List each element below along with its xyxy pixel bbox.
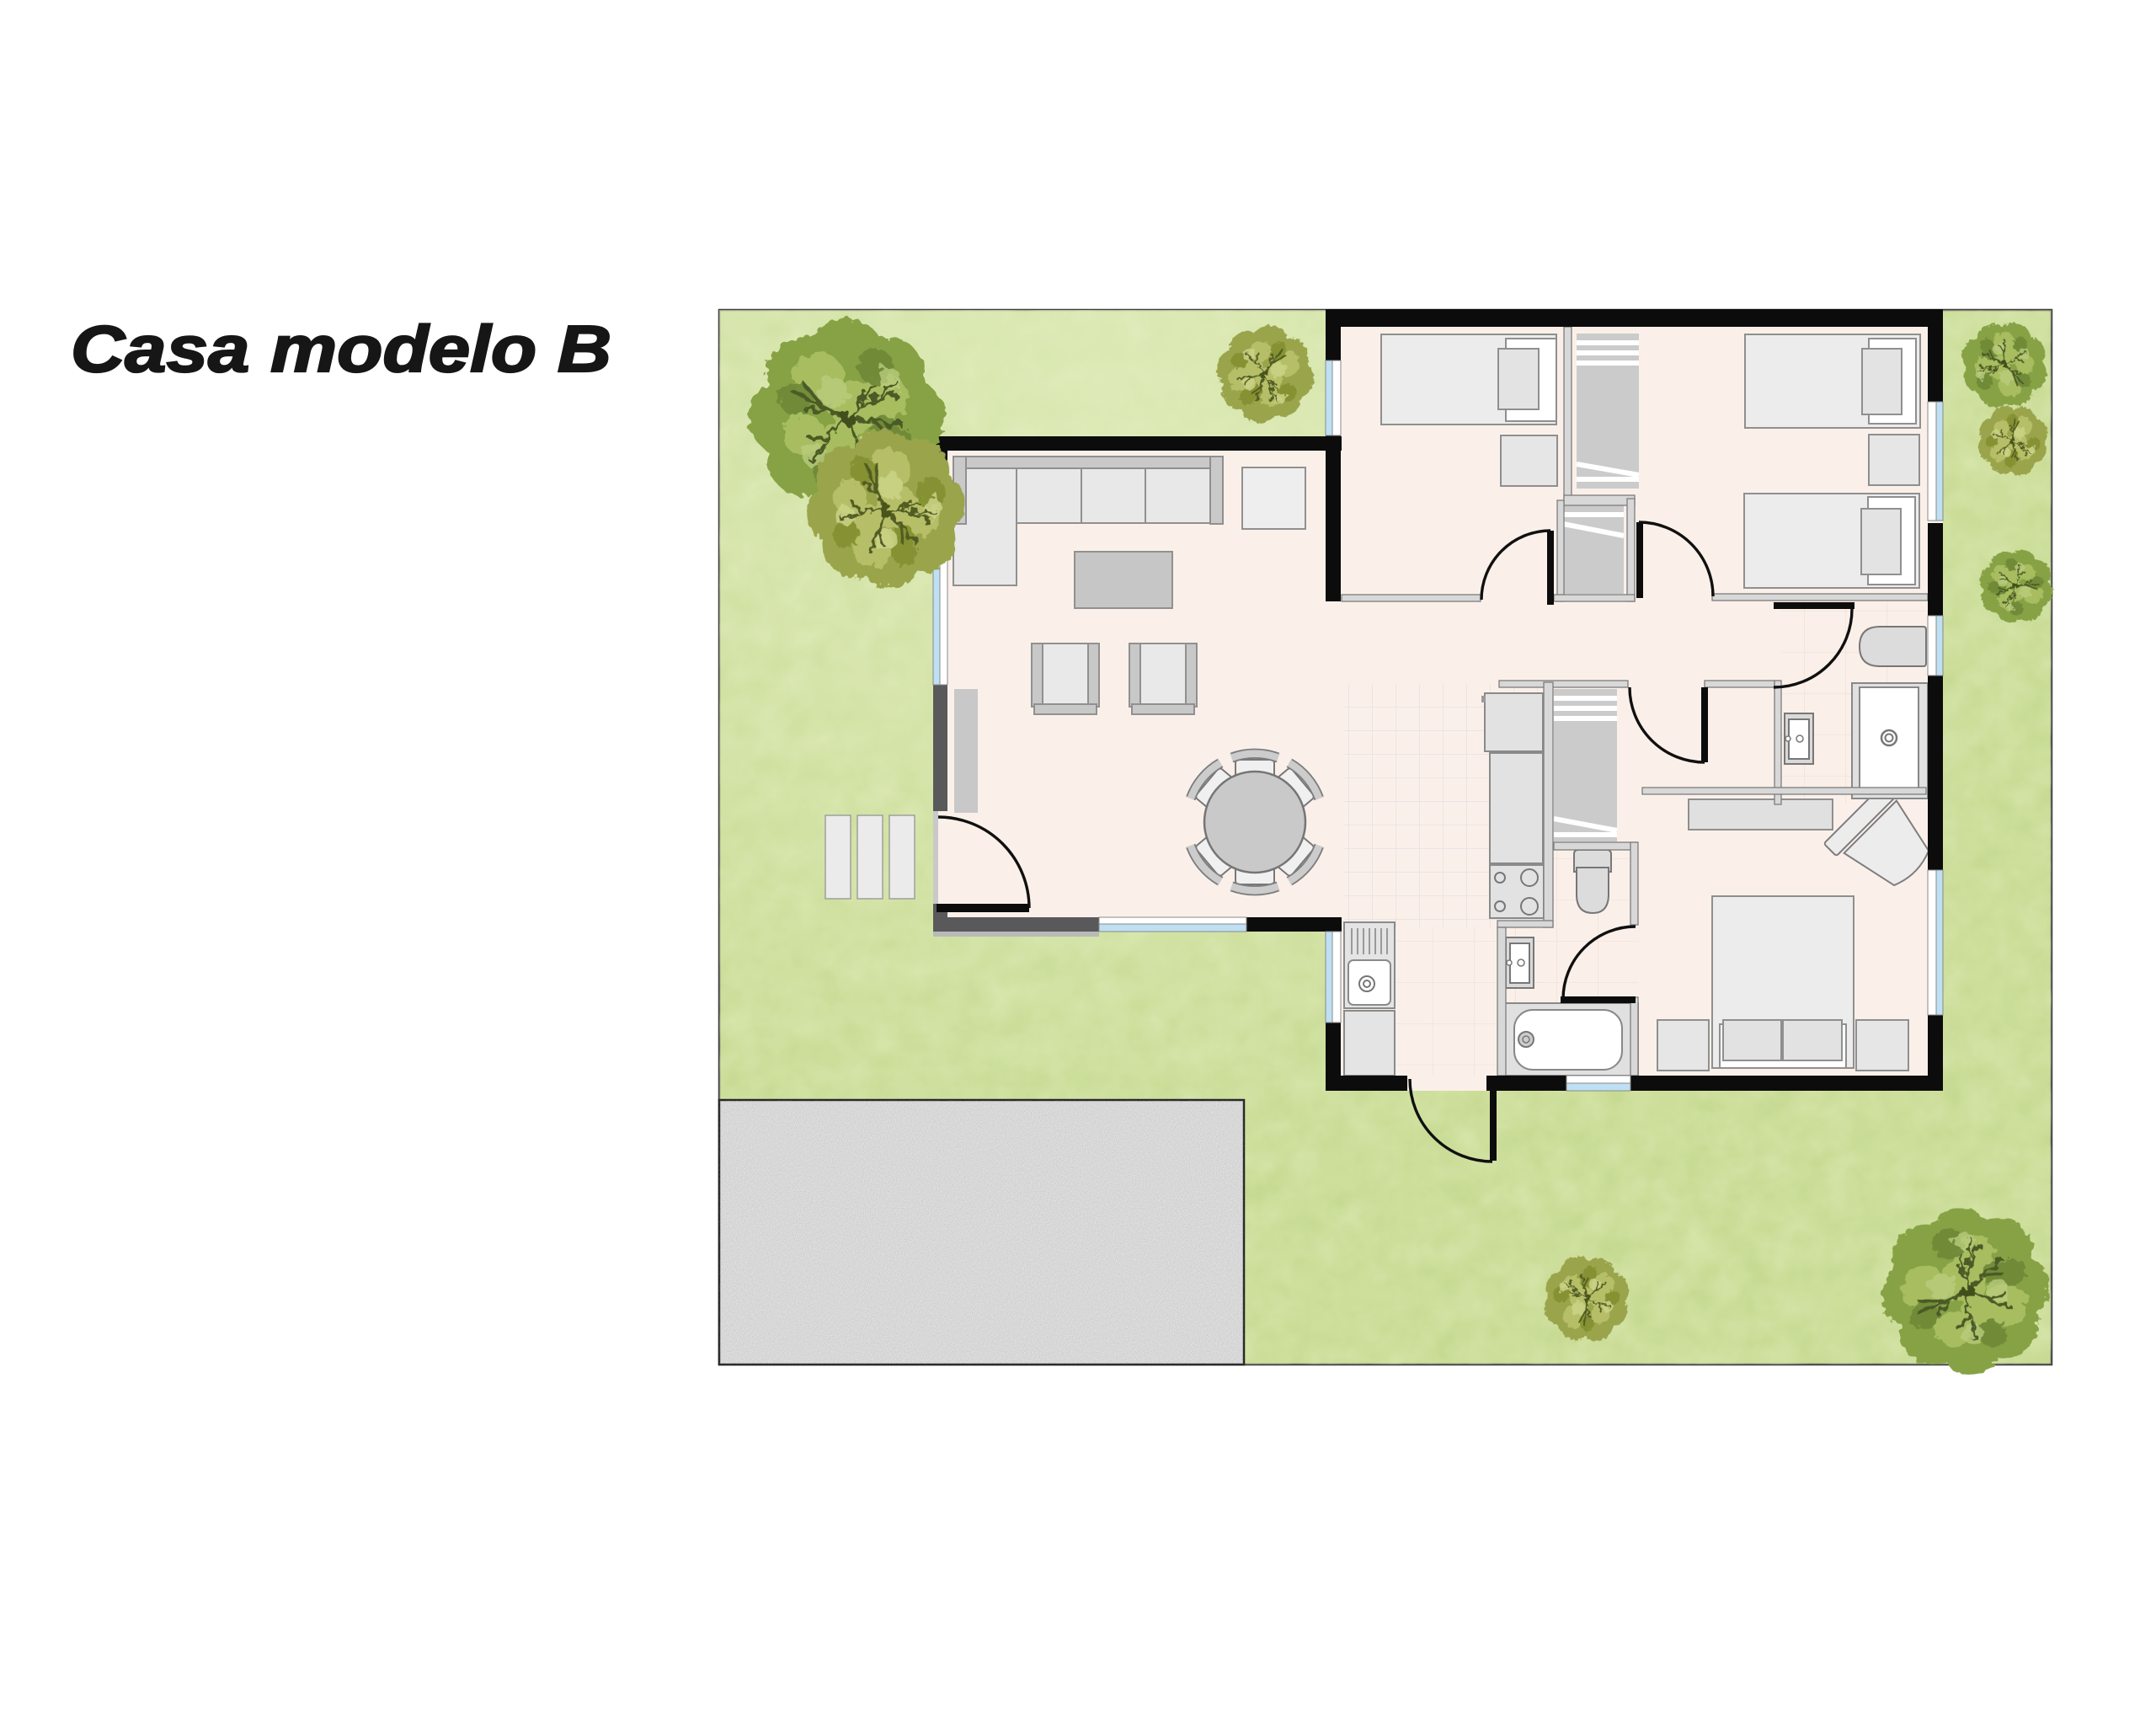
svg-text:Casa modelo B: Casa modelo B: [71, 312, 611, 386]
